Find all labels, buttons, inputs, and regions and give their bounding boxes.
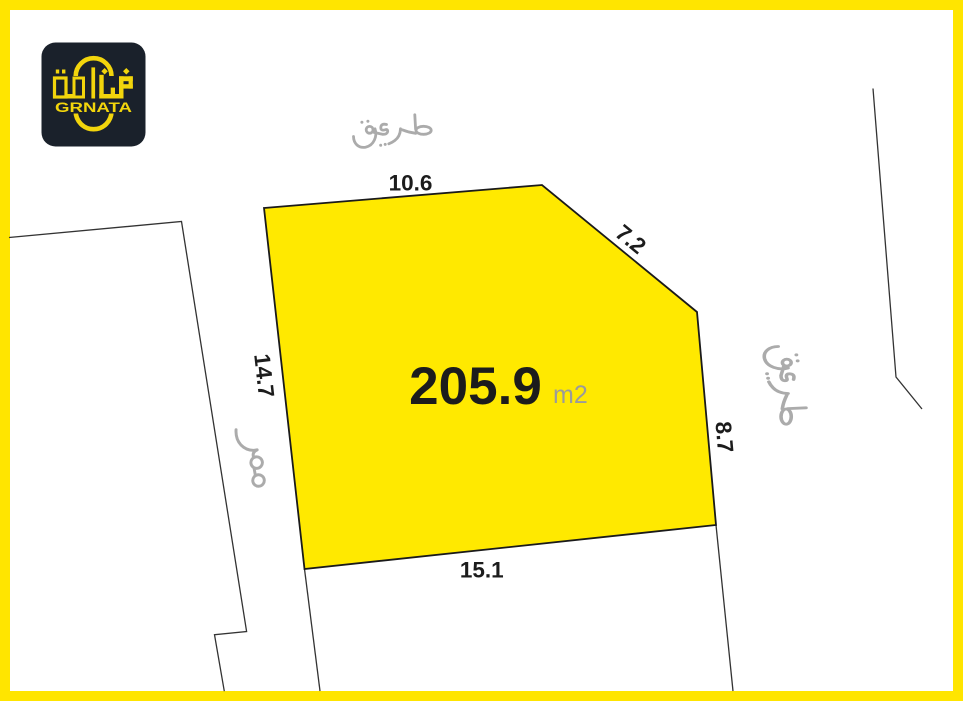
svg-text:15.1: 15.1 bbox=[460, 558, 504, 583]
svg-text:14.7: 14.7 bbox=[249, 352, 279, 398]
svg-text:8.7: 8.7 bbox=[710, 420, 738, 453]
svg-text:m2: m2 bbox=[553, 381, 588, 409]
svg-text:10.6: 10.6 bbox=[389, 171, 433, 196]
svg-text:205.9: 205.9 bbox=[409, 357, 542, 416]
svg-text:GRNATA: GRNATA bbox=[55, 100, 132, 115]
